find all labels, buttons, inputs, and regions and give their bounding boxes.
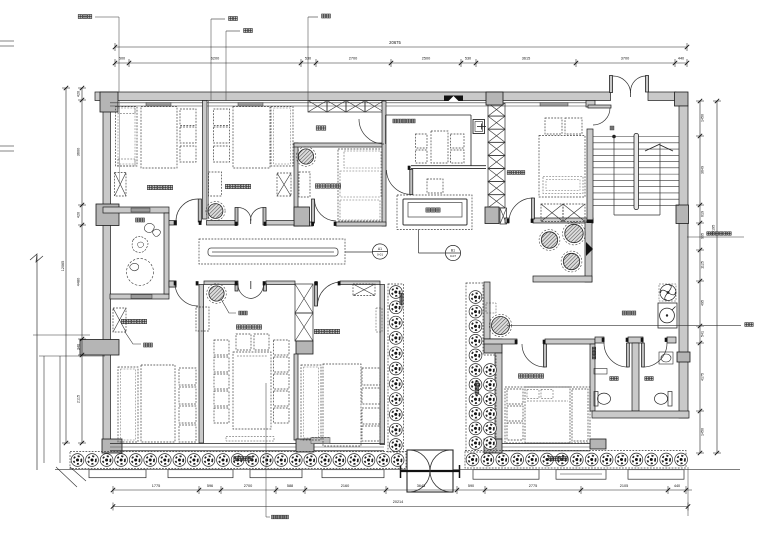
svg-text:965: 965 — [701, 233, 705, 239]
svg-text:2700: 2700 — [244, 484, 252, 488]
svg-text:A1: A1 — [378, 247, 382, 251]
svg-text:3643: 3643 — [417, 484, 425, 488]
svg-text:3649: 3649 — [701, 166, 705, 174]
svg-text:0-07: 0-07 — [450, 254, 456, 258]
svg-text:4175: 4175 — [701, 373, 705, 381]
svg-text:B1: B1 — [451, 249, 455, 253]
svg-text:20214: 20214 — [393, 500, 404, 504]
svg-text:2775: 2775 — [529, 484, 537, 488]
svg-text:2500: 2500 — [422, 57, 430, 61]
svg-text:6200: 6200 — [211, 57, 219, 61]
svg-text:0-01: 0-01 — [377, 252, 383, 256]
svg-text:1450: 1450 — [701, 428, 705, 436]
svg-text:440: 440 — [678, 57, 684, 61]
svg-text:2700: 2700 — [349, 57, 357, 61]
svg-text:440: 440 — [674, 484, 680, 488]
svg-text:530: 530 — [465, 57, 471, 61]
svg-text:1125: 1125 — [701, 261, 705, 269]
svg-text:619: 619 — [701, 211, 705, 217]
svg-text:4480: 4480 — [77, 278, 81, 286]
svg-text:590: 590 — [468, 484, 474, 488]
svg-text:420: 420 — [77, 212, 81, 218]
svg-text:2115: 2115 — [77, 395, 81, 403]
svg-text:2160: 2160 — [341, 484, 349, 488]
svg-text:530: 530 — [305, 57, 311, 61]
svg-text:3615: 3615 — [522, 57, 530, 61]
svg-text:340: 340 — [77, 344, 81, 350]
svg-text:1450: 1450 — [701, 114, 705, 122]
svg-text:3700: 3700 — [621, 57, 629, 61]
svg-text:596: 596 — [207, 484, 213, 488]
svg-text:500: 500 — [119, 57, 125, 61]
svg-text:20675: 20675 — [389, 40, 401, 45]
svg-text:1775: 1775 — [152, 484, 160, 488]
svg-text:588: 588 — [287, 484, 293, 488]
svg-text:2105: 2105 — [620, 484, 628, 488]
svg-text:12065: 12065 — [61, 261, 65, 272]
svg-text:495: 495 — [701, 300, 705, 306]
svg-text:541: 541 — [701, 331, 705, 337]
svg-text:3600: 3600 — [77, 148, 81, 156]
svg-text:420: 420 — [77, 91, 81, 97]
